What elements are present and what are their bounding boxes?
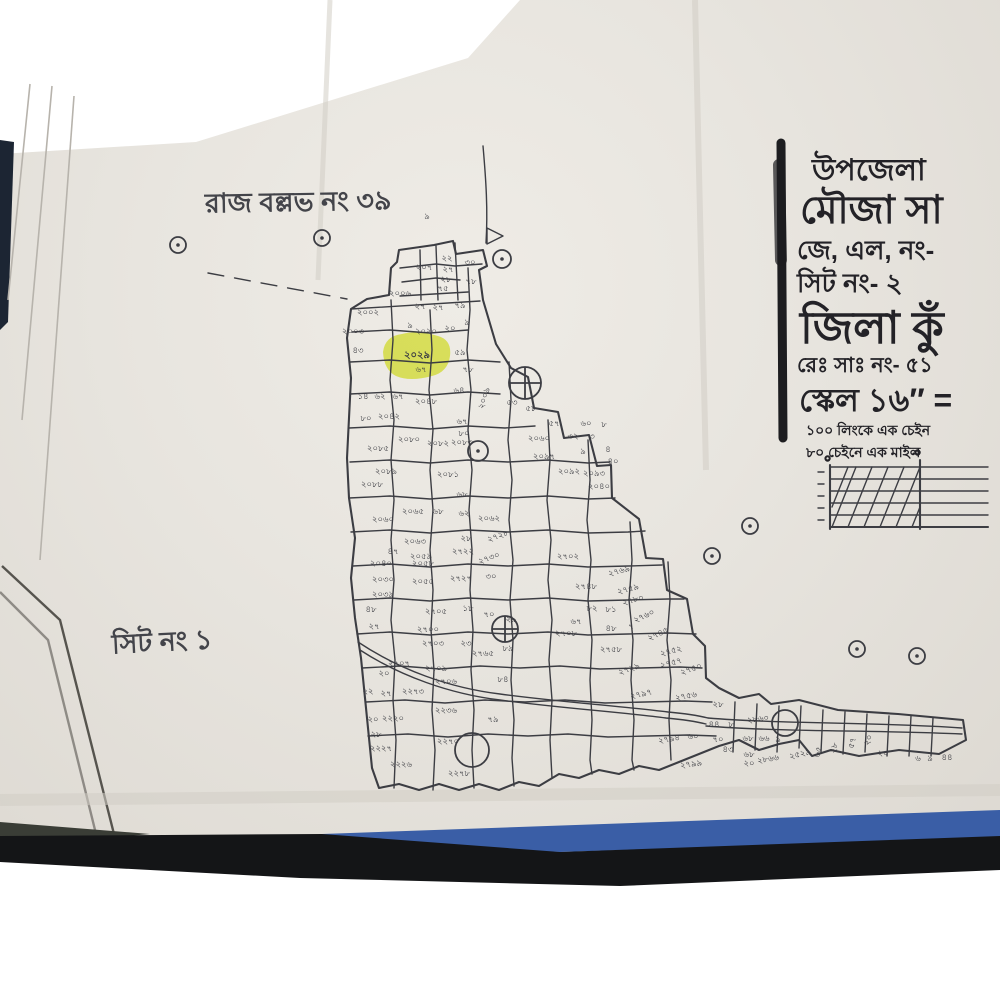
plot-number: ২৭৫৬ xyxy=(674,690,697,702)
plot-number: ২০৪৮ xyxy=(415,397,437,406)
plot-number: ২২২৭ xyxy=(370,744,392,753)
plot-number: ২৭৪৫ xyxy=(646,625,670,642)
plot-number: ২০৬৩ xyxy=(404,537,426,546)
plot-number: ২০২০ xyxy=(415,327,437,336)
plot-number: ২০৯৭ xyxy=(533,452,555,461)
plot-number: ৬০ xyxy=(687,732,698,741)
plot-number: ২০৪২ xyxy=(378,412,400,421)
plot-number: ২০৮৩ xyxy=(451,438,473,447)
plot-number: ২২ xyxy=(362,687,373,696)
plot-number: ৯ xyxy=(424,212,430,221)
plot-number: ৫৯ xyxy=(454,348,465,357)
plot-number: ২৭২৯ xyxy=(617,661,641,677)
plot-number: ৪৩ xyxy=(352,346,363,355)
plot-number: ২০০৩ xyxy=(342,327,364,336)
plot-number: ২৩ xyxy=(460,639,471,648)
plot-number: ৬৮ xyxy=(456,490,467,499)
plot-number: ২০০৬ xyxy=(389,289,411,298)
plot-number: ২৭০৯ xyxy=(425,664,447,673)
plot-number: ৭০ xyxy=(483,610,494,619)
plot-number: ৯ xyxy=(580,447,586,456)
plot-number: ২০৮২ xyxy=(427,439,449,448)
plot-number: ৫৩ xyxy=(506,398,517,407)
plot-number: ২০০৯ xyxy=(477,386,492,410)
plot-number: ৭৫ xyxy=(437,284,448,293)
plot-number: ৭৮ xyxy=(462,365,473,374)
plot-number: ৬৪ xyxy=(453,386,464,395)
plot-number: ২৭০৮ xyxy=(555,629,577,638)
plot-number: ৪ xyxy=(605,445,611,454)
plot-number: ৩০ xyxy=(485,572,496,581)
plot-number: ৬৮ xyxy=(432,507,443,516)
plot-number: ২৭ xyxy=(442,265,453,274)
plot-number: ২৭০৩ xyxy=(422,639,444,648)
plot-number: ৮৯ xyxy=(502,644,513,653)
plot-number: ২০০২ xyxy=(357,308,379,317)
plot-number: ৬৬ xyxy=(758,734,769,743)
plot-number: ৮২ xyxy=(586,604,597,613)
plot-number: ২০ xyxy=(367,715,378,724)
plot-number: ৬৭ xyxy=(392,392,403,401)
plot-number: ৭০ xyxy=(712,735,723,744)
plot-number: ৮০ xyxy=(360,414,371,423)
plot-number: ২০৫৫ xyxy=(412,577,434,586)
plot-number: ৪৭ xyxy=(387,547,398,556)
plot-number: ৬৭ xyxy=(570,617,581,626)
plot-number: ২০ xyxy=(862,733,874,746)
plot-number: ৫৮ xyxy=(525,404,536,413)
plot-number: ২৭২২ xyxy=(452,547,474,556)
plot-number: ২০৮০ xyxy=(398,435,420,444)
plot-number: ৬ xyxy=(915,754,921,763)
plot-number: ২০৪০ xyxy=(588,482,610,491)
plot-number: ২৭০৬ xyxy=(435,677,457,686)
plot-number: ২৭৯৯ xyxy=(679,758,702,769)
plot-number: ২৫২৯ xyxy=(788,747,811,761)
plot-number: ২৭২৮ xyxy=(486,528,510,544)
plot-number: ৬৫ xyxy=(812,746,823,759)
plot-number: ২২ xyxy=(441,254,452,263)
plot-number: ৯ xyxy=(407,321,413,330)
plot-number: ৫৭ xyxy=(548,419,559,428)
plot-number: ২৭৩০ xyxy=(477,550,501,566)
plot-number: ৪৮ xyxy=(365,605,376,614)
plot-number: ২০৬০ xyxy=(528,434,550,443)
plot-number: ২০৩৯ xyxy=(372,590,394,599)
plot-number: ২৭ xyxy=(368,622,379,631)
plot-number: ২৮৬০ xyxy=(746,713,769,724)
plot-number: ২০৫৮ xyxy=(412,559,434,568)
plot-number: ৭৮ xyxy=(465,277,476,286)
plot-number: ২৭৫৮ xyxy=(600,645,622,654)
plot-number: ২৭৬৯ xyxy=(607,564,631,578)
plot-number: ২৯ xyxy=(505,615,516,624)
plot-number: ৩২ xyxy=(567,432,578,441)
plot-number: ৪৮ xyxy=(605,624,616,633)
plot-number: ২৭০২ xyxy=(557,552,579,561)
plot-number: ২০ xyxy=(743,759,754,768)
plot-number: ৪৩ xyxy=(722,745,733,754)
legend-scale-note1: ১০০ লিংকে এক চেইন xyxy=(806,419,930,443)
plot-number: ২৭৪৮ xyxy=(575,582,597,591)
plot-number: ২৮ xyxy=(712,700,723,709)
legend-scale-note2: ৮০ চেইনে এক মাইল xyxy=(806,441,920,465)
plot-number: ২৭ xyxy=(432,303,443,312)
plot-number: ৬০ xyxy=(580,419,591,428)
plot-number: ৫৭ xyxy=(846,737,857,750)
plot-number: ৪৪ xyxy=(941,753,952,762)
plot-number: ৪৪ xyxy=(708,720,719,729)
plot-number: ২২৭৮ xyxy=(448,769,470,778)
plot-number: ২০৮১ xyxy=(437,470,459,479)
plot-number: ২৭ xyxy=(380,689,391,698)
plot-number: ২৭০৫ xyxy=(425,607,447,616)
plot-number: ২০ xyxy=(444,324,455,333)
plot-number: ২৭৬০ xyxy=(632,607,656,624)
plot-number: ২০৭ xyxy=(416,263,433,272)
plot-number: ২০৩০ xyxy=(372,575,394,584)
plot-number: ৮ xyxy=(601,420,607,429)
plot-number: ২২৩৬ xyxy=(435,706,457,715)
plot-number: ২২৭৩ xyxy=(402,687,424,696)
plot-number: ২০৮৯ xyxy=(375,467,397,476)
plot-number: ১৪ xyxy=(357,392,368,401)
plot-number: ২০৬২ xyxy=(478,514,500,523)
plot-number: ৩০ xyxy=(464,258,475,267)
plot-number: ৯ xyxy=(927,754,933,763)
plot-number: ৮ xyxy=(728,720,734,729)
plot-number: ২৭৮০ xyxy=(621,593,645,607)
map-photo: ০ ০ রাজ বল্লভ নং ৩৯ সিট নং ১ ২০২৯ ৬৭ ২২৩… xyxy=(0,0,1000,1000)
plot-number: ৬৭ xyxy=(456,417,467,426)
plot-number: ৮১ xyxy=(605,605,616,614)
plot-number: ২৮ xyxy=(828,742,839,755)
plot-number: ২০৮৫ xyxy=(367,444,389,453)
plot-number: ২৭২৭ xyxy=(450,574,472,583)
plot-number: ২২২৬ xyxy=(390,760,412,769)
plot-number: ৩ xyxy=(589,432,595,441)
plot-number: ১৮ xyxy=(462,604,473,613)
plot-number: ২০ xyxy=(877,749,888,758)
plot-number: ৯ xyxy=(775,735,781,744)
plot-number: ২০৯২ xyxy=(558,467,580,476)
plot-number: ২৭৯৭ xyxy=(629,688,652,701)
plot-number: ২৭ xyxy=(414,302,425,311)
plot-number: ২০৬৫ xyxy=(402,507,424,516)
plot-number: ২২৭০ xyxy=(437,737,459,746)
plot-number: ৬২ xyxy=(458,509,469,518)
plot-number: ৬২ xyxy=(374,392,385,401)
plot-number: ৮৪ xyxy=(497,675,508,684)
plot-number: ২৭৬৫ xyxy=(472,649,494,658)
plot-number: ৬৮ xyxy=(742,734,753,743)
plot-number: ৭৯ xyxy=(487,715,498,724)
plot-number: ২০৪০ xyxy=(370,559,392,568)
plot-number: ৭৯ xyxy=(454,301,465,310)
plot-number: ২২২০ xyxy=(382,714,404,723)
plot-number: ২০৬০ xyxy=(372,515,394,524)
plot-number: ২৭০৭ xyxy=(388,659,410,668)
plot-number: ২৭০০ xyxy=(417,625,439,634)
plot-number: ২৭৯৪ xyxy=(657,733,680,745)
plot-number: ২৮ xyxy=(370,730,381,739)
plot-number: ৯ xyxy=(464,318,470,327)
plot-number: ৪০ xyxy=(607,457,618,466)
plot-number: ২০৮৮ xyxy=(361,480,383,489)
plot-number: ২৮৬৬ xyxy=(756,753,779,765)
plot-number: ২০৯৩ xyxy=(583,469,605,478)
plot-number: ২০ xyxy=(378,669,389,678)
plot-number: ৭ xyxy=(628,622,634,631)
plot-number: ২৮ xyxy=(460,534,471,543)
